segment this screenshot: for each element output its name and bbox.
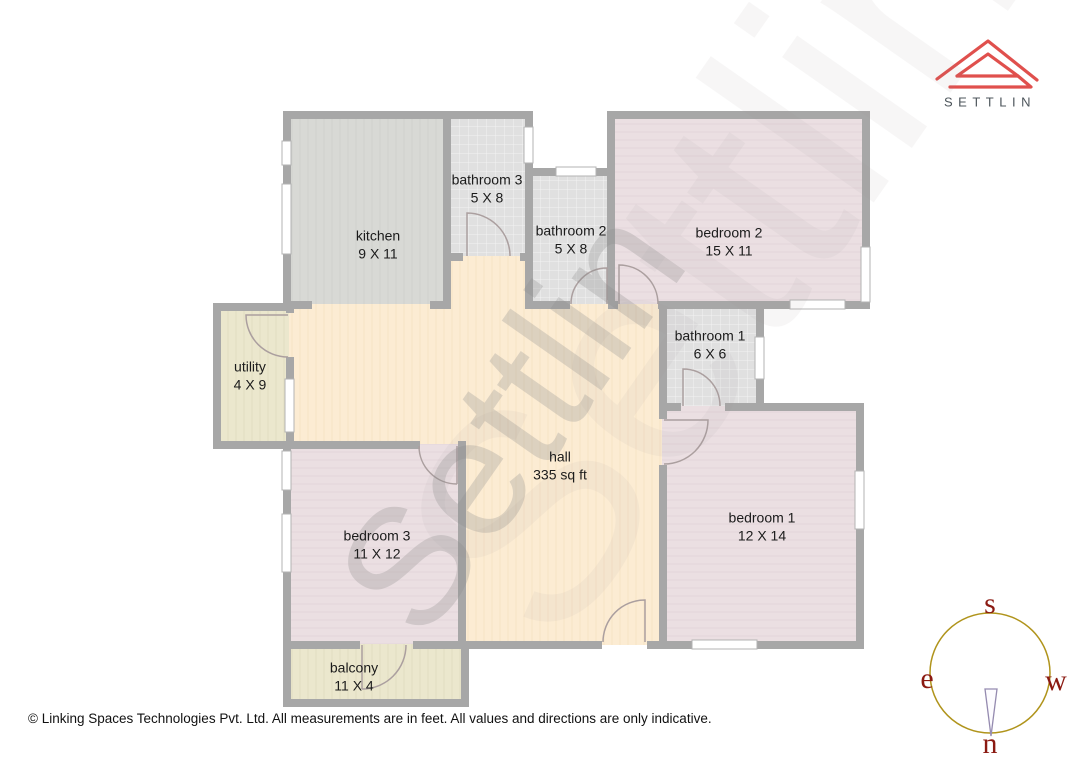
room-label-bedroom2: bedroom 2 15 X 11 bbox=[696, 225, 763, 260]
room-label-bathroom2: bathroom 2 5 X 8 bbox=[536, 223, 607, 258]
room-label-hall: hall 335 sq ft bbox=[533, 449, 587, 484]
room-dims: 12 X 14 bbox=[729, 527, 796, 545]
room-name: bathroom 2 bbox=[536, 223, 607, 241]
room-dims: 9 X 11 bbox=[356, 245, 400, 263]
room-label-kitchen: kitchen 9 X 11 bbox=[356, 228, 400, 263]
window bbox=[790, 300, 845, 309]
room-name: balcony bbox=[330, 660, 378, 678]
compass-icon bbox=[930, 613, 1050, 736]
room-name: kitchen bbox=[356, 228, 400, 246]
window bbox=[556, 167, 596, 176]
room-dims: 5 X 8 bbox=[452, 189, 523, 207]
settlin-logo-icon bbox=[937, 41, 1037, 87]
window bbox=[755, 337, 764, 379]
compass-east-label: e bbox=[920, 662, 933, 696]
floor-plan-drawing bbox=[0, 0, 1080, 764]
compass-north-label: n bbox=[983, 727, 998, 761]
room-dims: 5 X 8 bbox=[536, 240, 607, 258]
rooms bbox=[217, 115, 866, 703]
room-label-bathroom3: bathroom 3 5 X 8 bbox=[452, 172, 523, 207]
room-bedroom2 bbox=[611, 115, 866, 305]
room-dims: 15 X 11 bbox=[696, 242, 763, 260]
window bbox=[282, 451, 291, 490]
copyright-note: © Linking Spaces Technologies Pvt. Ltd. … bbox=[28, 711, 712, 726]
room-label-balcony: balcony 11 X 4 bbox=[330, 660, 378, 695]
room-kitchen bbox=[287, 115, 447, 305]
room-dims: 11 X 12 bbox=[344, 545, 411, 563]
room-name: bathroom 3 bbox=[452, 172, 523, 190]
settlin-brand-text: SETTLIN bbox=[944, 95, 1036, 110]
room-dims: 335 sq ft bbox=[533, 466, 587, 484]
window bbox=[282, 514, 291, 572]
room-name: bedroom 1 bbox=[729, 510, 796, 528]
window bbox=[855, 471, 864, 529]
room-dims: 11 X 4 bbox=[330, 677, 378, 695]
window bbox=[285, 379, 294, 432]
window bbox=[861, 247, 870, 302]
compass-south-label: s bbox=[984, 587, 996, 621]
room-name: bathroom 1 bbox=[675, 328, 746, 346]
room-label-bedroom3: bedroom 3 11 X 12 bbox=[344, 528, 411, 563]
room-label-bathroom1: bathroom 1 6 X 6 bbox=[675, 328, 746, 363]
room-name: utility bbox=[234, 359, 267, 377]
window bbox=[282, 141, 291, 165]
room-name: bedroom 3 bbox=[344, 528, 411, 546]
window bbox=[282, 184, 291, 254]
floor-plan-page: Settlin Settlin kitchen 9 X 11 bathroom … bbox=[0, 0, 1080, 764]
room-label-bedroom1: bedroom 1 12 X 14 bbox=[729, 510, 796, 545]
room-name: hall bbox=[533, 449, 587, 467]
room-label-utility: utility 4 X 9 bbox=[234, 359, 267, 394]
room-name: bedroom 2 bbox=[696, 225, 763, 243]
room-dims: 4 X 9 bbox=[234, 376, 267, 394]
window bbox=[524, 127, 533, 163]
room-dims: 6 X 6 bbox=[675, 345, 746, 363]
window bbox=[692, 640, 757, 649]
compass-west-label: w bbox=[1045, 664, 1067, 698]
